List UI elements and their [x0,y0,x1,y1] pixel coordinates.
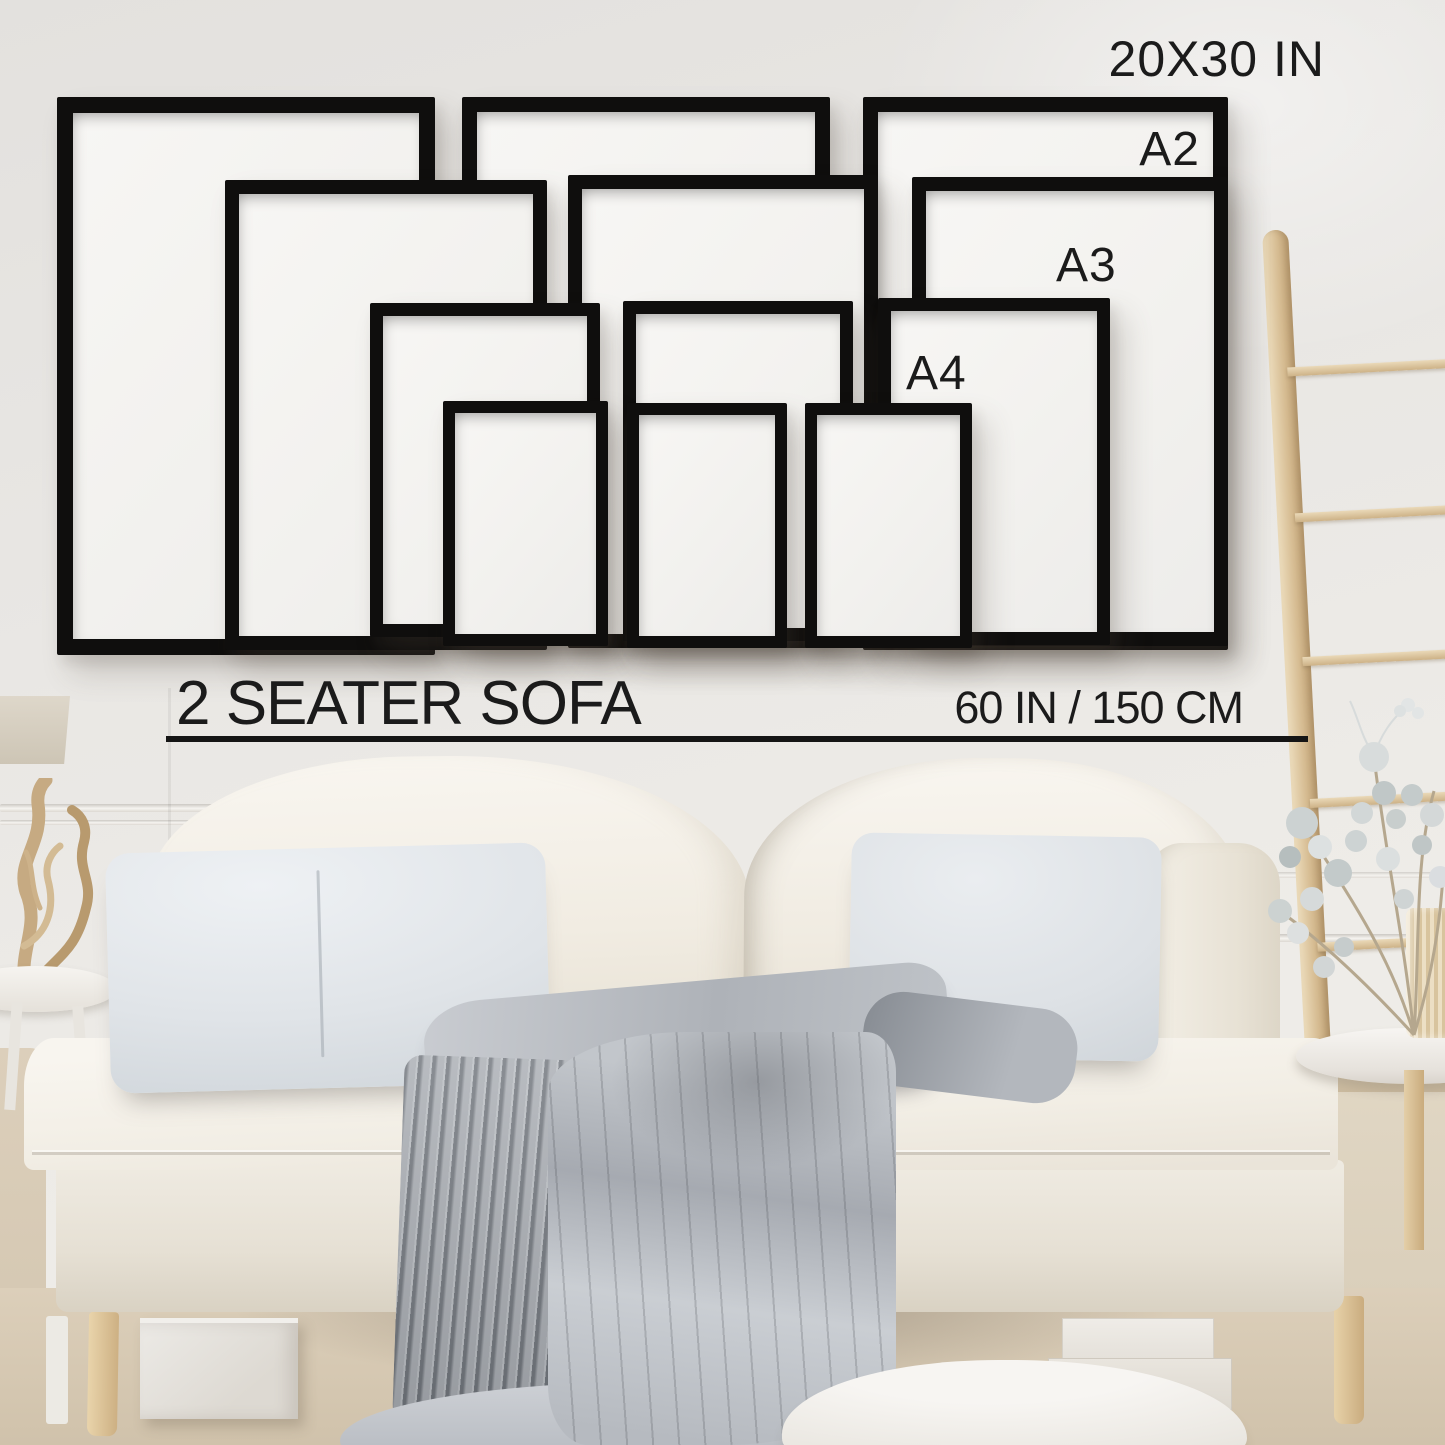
sofa-width-label: 60 IN / 150 CM [954,682,1243,734]
label-a4: A4 [906,346,967,401]
picture-frame-a4-middle [627,403,787,648]
storage-box-white [140,1318,298,1419]
label-largest-size: 20X30 IN [1109,30,1325,88]
dried-plant [1262,695,1445,1045]
sofa-type-label: 2 SEATER SOFA [176,668,641,739]
frames-layer [0,0,1445,700]
label-a3: A3 [1056,238,1117,293]
picture-frame-a4-left [443,401,608,646]
sofa-leg-wood-left [87,1312,119,1437]
measurement-line [166,736,1308,742]
lampshade [0,696,70,764]
picture-frame-a4-right [805,403,972,648]
sofa-leg-white-left [46,1316,68,1424]
label-a2: A2 [1139,122,1200,177]
sofa-leg-wood-right [1334,1296,1364,1424]
size-guide-scene: 20X30 IN A2 A3 A4 2 SEATER SOFA 60 IN / … [0,0,1445,1445]
side-table-right-leg [1404,1070,1424,1250]
